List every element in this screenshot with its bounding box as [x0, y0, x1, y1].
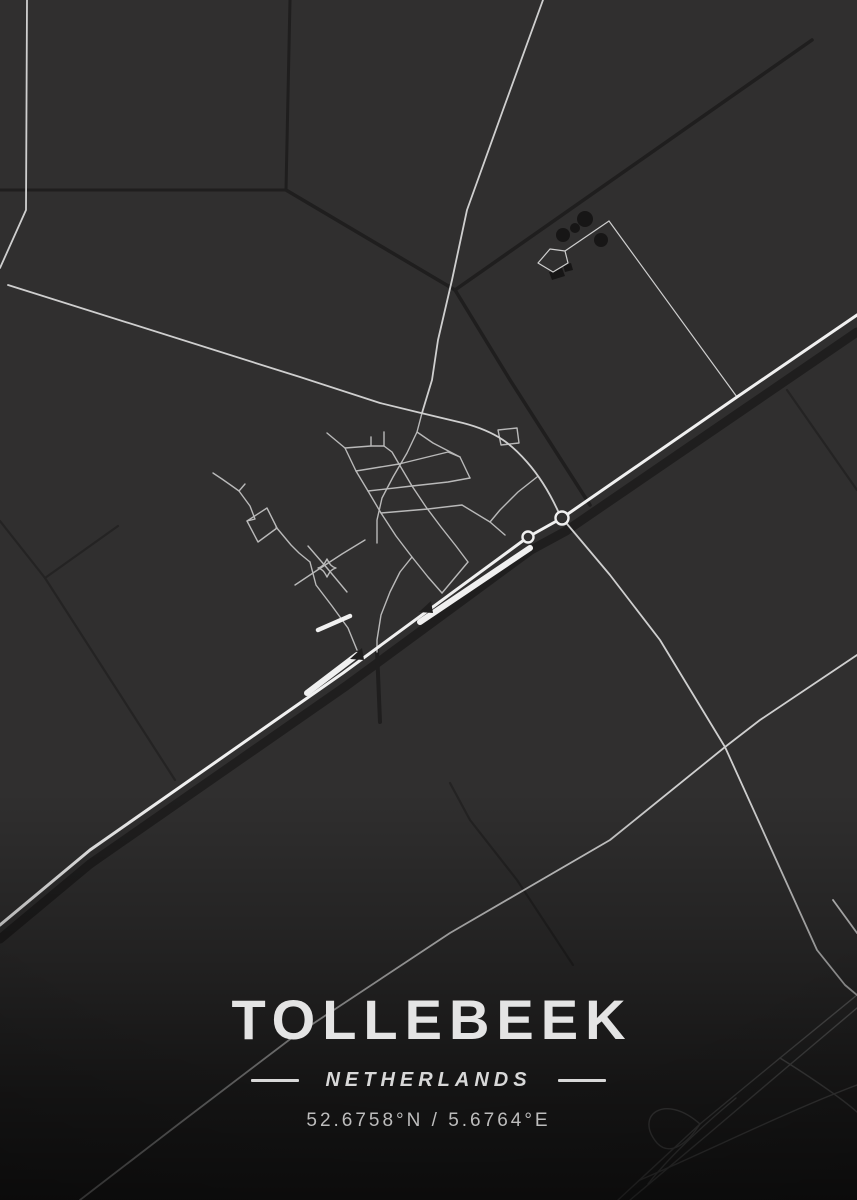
village-streets-path [345, 446, 399, 464]
farm-buildings-circle [594, 233, 608, 247]
subtitle-right-rule [558, 1079, 606, 1082]
village-streets-path [247, 508, 277, 542]
field-lines [0, 390, 857, 965]
poster-coordinates: 52.6758°N / 5.6764°E [0, 1110, 857, 1132]
farm-buildings-circle [577, 211, 593, 227]
village-streets [213, 413, 537, 652]
rural-roads-path [422, 0, 543, 413]
rural-roads-path [562, 518, 857, 995]
roundabouts-circle [556, 512, 569, 525]
village-streets-path [308, 546, 347, 592]
poster-subtitle: NETHERLANDS [325, 1069, 531, 1092]
village-streets-path [490, 477, 537, 522]
canals-path [286, 0, 290, 190]
map-poster: TOLLEBEEK NETHERLANDS 52.6758°N / 5.6764… [0, 0, 857, 1200]
subtitle-left-rule [251, 1079, 299, 1082]
field-lines-path [0, 521, 175, 780]
rural-roads-path [609, 221, 737, 397]
village-streets-path [295, 540, 365, 585]
farm-buildings-path [563, 263, 573, 272]
bridge-markers-path [419, 601, 433, 613]
farm-buildings-circle [556, 228, 570, 242]
canals-path [286, 190, 455, 290]
canals-path [0, 332, 857, 939]
village-streets-path [276, 527, 310, 562]
village-streets-path [399, 464, 468, 562]
village-streets-path [417, 432, 470, 478]
rural-roads-path [0, 0, 27, 268]
village-streets-path [368, 478, 470, 491]
rural-roads-path [538, 249, 568, 272]
field-lines-path [450, 783, 573, 965]
village-streets-path [498, 428, 519, 445]
rural-roads-path [833, 900, 857, 933]
roundabouts-circle [523, 532, 534, 543]
canals-path [455, 290, 590, 505]
canals-path [455, 40, 812, 290]
farm-buildings-circle [570, 223, 580, 233]
field-lines-path [787, 390, 857, 490]
village-streets-path [213, 473, 255, 521]
poster-subtitle-row: NETHERLANDS [0, 1069, 857, 1092]
village-streets-path [356, 452, 460, 471]
canals [0, 0, 857, 939]
highway-path [420, 548, 530, 622]
village-streets-path [239, 484, 245, 491]
rural-roads-path [8, 285, 562, 518]
field-lines-path [45, 526, 118, 578]
village-streets-path [442, 562, 468, 593]
poster-title: TOLLEBEEK [0, 992, 857, 1048]
